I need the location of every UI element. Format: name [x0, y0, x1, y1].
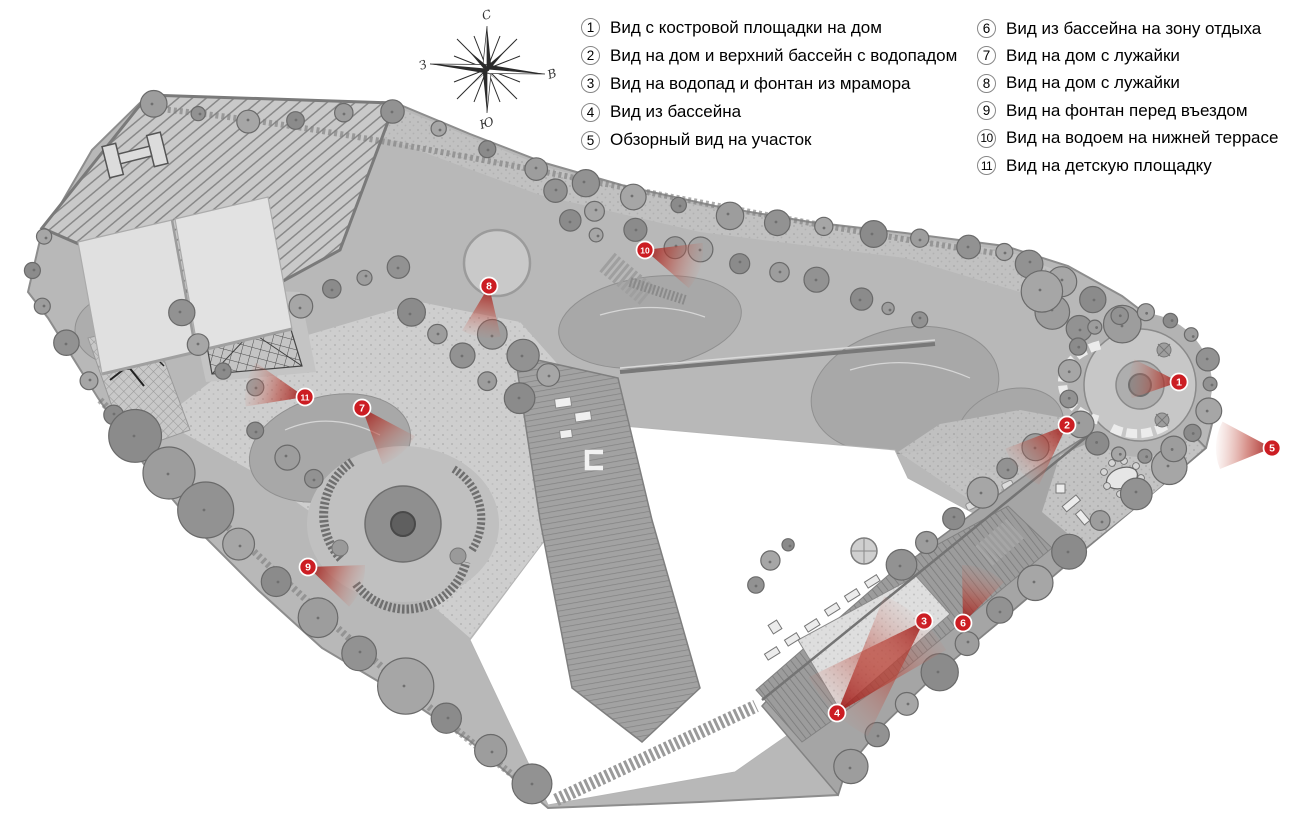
tree [191, 107, 205, 121]
tree-center-dot [815, 279, 818, 282]
tree [671, 197, 686, 212]
tree-center-dot [521, 355, 524, 358]
tree [223, 528, 255, 560]
view-marker-number: 1 [1176, 377, 1182, 389]
tree-center-dot [755, 585, 758, 588]
tree-center-dot [1068, 370, 1071, 373]
tree-center-dot [1095, 441, 1098, 444]
tree [860, 221, 887, 248]
view-marker-number: 4 [834, 708, 840, 720]
tree-center-dot [1101, 521, 1104, 524]
tree [834, 749, 868, 783]
tree-center-dot [65, 343, 68, 346]
tree [1203, 377, 1217, 391]
tree-center-dot [1167, 465, 1170, 468]
tree-center-dot [1077, 346, 1080, 349]
tree [1021, 271, 1062, 312]
tree [912, 312, 928, 328]
tree-center-dot [151, 103, 154, 106]
tree [955, 632, 979, 656]
tree [37, 229, 52, 244]
tree-center-dot [1145, 455, 1148, 458]
tree-center-dot [461, 355, 464, 358]
tree-center-dot [1192, 335, 1195, 338]
tree [475, 735, 507, 767]
tree-center-dot [167, 473, 170, 476]
tree [478, 372, 497, 391]
compass-label-west: З [417, 57, 428, 73]
tree-center-dot [488, 381, 491, 384]
tree-center-dot [43, 305, 46, 308]
view-marker-number: 11 [301, 393, 310, 403]
tree [261, 567, 291, 597]
tree-center-dot [331, 289, 334, 292]
tree-center-dot [33, 269, 36, 272]
tree-center-dot [133, 435, 136, 438]
tree [1112, 447, 1126, 461]
tree-center-dot [89, 379, 92, 382]
tree [730, 254, 750, 274]
view-marker-5: 5 [1215, 421, 1281, 471]
tree-center-dot [1039, 289, 1042, 292]
tree [815, 217, 833, 235]
tree [1121, 478, 1153, 510]
tree-center-dot [569, 221, 572, 224]
tree-center-dot [1079, 329, 1082, 332]
tree-center-dot [555, 189, 558, 192]
tree-center-dot [823, 227, 826, 230]
tree-center-dot [239, 545, 242, 548]
tree [967, 477, 998, 508]
tree-center-dot [247, 119, 250, 122]
tree-center-dot [980, 492, 983, 495]
tree [882, 302, 894, 314]
tree [916, 532, 938, 554]
tree-center-dot [937, 671, 940, 674]
tree-center-dot [597, 235, 600, 238]
tree [431, 121, 446, 136]
tree-center-dot [1171, 448, 1174, 451]
tree-center-dot [113, 413, 116, 416]
tree-center-dot [437, 333, 440, 336]
tree [782, 539, 794, 551]
tree-center-dot [295, 119, 298, 122]
view-marker-number: 10 [640, 246, 650, 256]
tree-center-dot [775, 221, 778, 224]
tree [1163, 313, 1177, 327]
tree-center-dot [535, 167, 538, 170]
view-marker-number: 5 [1269, 443, 1275, 455]
tree-center-dot [919, 239, 922, 242]
tree-center-dot [1145, 312, 1148, 315]
tree-center-dot [583, 181, 586, 184]
tree [1184, 328, 1198, 342]
tree-center-dot [391, 111, 394, 114]
tree [1088, 320, 1102, 334]
tree [178, 482, 234, 538]
tree-center-dot [1206, 358, 1209, 361]
tree-center-dot [317, 617, 320, 620]
tree [911, 229, 929, 247]
tree [289, 294, 313, 318]
tree [1196, 398, 1222, 424]
tree-center-dot [285, 455, 288, 458]
view-marker-number: 6 [960, 618, 966, 630]
tree-center-dot [1033, 581, 1036, 584]
tree-center-dot [631, 195, 634, 198]
tree-center-dot [518, 397, 521, 400]
tree [378, 658, 434, 714]
tree-center-dot [203, 509, 206, 512]
tree-center-dot [1077, 422, 1080, 425]
tree [761, 551, 780, 570]
tree [237, 110, 260, 133]
tree [275, 445, 300, 470]
tree [342, 636, 377, 671]
tree [572, 170, 599, 197]
tree-center-dot [403, 685, 406, 688]
tree [886, 550, 917, 581]
tree [215, 363, 231, 379]
site-plan: С Ю З В 1234567891011 [0, 0, 1300, 827]
garden-plan-sheet: С Ю З В 1234567891011 1Вид с костровой п… [0, 0, 1300, 827]
tree [589, 228, 603, 242]
round-patio [851, 538, 877, 564]
tree-center-dot [859, 299, 862, 302]
tree [140, 91, 167, 118]
tree-center-dot [967, 641, 970, 644]
tree-center-dot [953, 516, 956, 519]
tree [431, 703, 461, 733]
view-marker-number: 9 [305, 562, 311, 574]
tree-center-dot [1119, 453, 1122, 456]
tree-center-dot [1061, 279, 1064, 282]
tree-center-dot [1121, 325, 1124, 328]
tree-center-dot [223, 369, 226, 372]
tree-center-dot [999, 611, 1002, 614]
tree-center-dot [926, 540, 929, 543]
tree [247, 422, 264, 439]
tree-center-dot [779, 271, 782, 274]
tree-center-dot [1192, 432, 1195, 435]
view-marker-number: 2 [1064, 420, 1070, 432]
tree-center-dot [769, 561, 772, 564]
tree-center-dot [491, 751, 494, 754]
tree-center-dot [313, 479, 316, 482]
tree-center-dot [967, 246, 970, 249]
view-marker-number: 8 [486, 281, 492, 293]
tree-center-dot [409, 313, 412, 316]
tree [24, 263, 40, 279]
tree-center-dot [1029, 261, 1032, 264]
tree-center-dot [595, 209, 598, 212]
tree-center-dot [1135, 491, 1138, 494]
tree-center-dot [849, 767, 852, 770]
view-marker-number: 7 [359, 403, 365, 415]
tree [716, 202, 743, 229]
tree [1161, 436, 1187, 462]
tree-center-dot [727, 213, 730, 216]
tree-center-dot [1171, 319, 1174, 322]
tree-center-dot [635, 229, 638, 232]
tree-center-dot [343, 113, 346, 116]
tree [1138, 449, 1152, 463]
compass-label-north: С [480, 7, 493, 23]
tree-center-dot [871, 233, 874, 236]
tree-center-dot [487, 149, 490, 152]
tree-center-dot [299, 307, 302, 310]
compass-rose: С Ю З В [417, 7, 558, 132]
tree-center-dot [877, 735, 880, 738]
tree [987, 597, 1013, 623]
tree [621, 184, 647, 210]
tree-center-dot [739, 261, 742, 264]
tree-center-dot [531, 783, 534, 786]
tree [169, 300, 195, 326]
tree-center-dot [397, 267, 400, 270]
tree [585, 201, 605, 221]
tree [1090, 511, 1110, 531]
tree [357, 270, 372, 285]
tree [398, 298, 426, 326]
tree-center-dot [359, 651, 362, 654]
tree [1018, 565, 1053, 600]
tree-center-dot [1206, 410, 1209, 413]
tree-center-dot [447, 717, 450, 720]
tree-center-dot [1211, 384, 1214, 387]
compass-label-south: Ю [477, 114, 496, 132]
tree-center-dot [919, 317, 922, 320]
tree-center-dot [365, 275, 368, 278]
tree-center-dot [889, 309, 892, 312]
tree-center-dot [45, 237, 48, 240]
tree-center-dot [907, 703, 910, 706]
tree-center-dot [1067, 551, 1070, 554]
tree-center-dot [197, 343, 200, 346]
tree-center-dot [1068, 397, 1071, 400]
compass-label-east: В [545, 66, 559, 82]
tree-center-dot [179, 311, 182, 314]
tree-center-dot [1007, 469, 1010, 472]
tree-center-dot [255, 431, 258, 434]
tree-center-dot [1119, 314, 1122, 317]
tree-center-dot [899, 565, 902, 568]
tree-center-dot [199, 113, 202, 116]
tree [851, 288, 873, 310]
tree [560, 210, 581, 231]
tree-center-dot [277, 581, 280, 584]
tree-center-dot [789, 545, 792, 548]
tree-center-dot [1004, 252, 1007, 255]
tree-center-dot [439, 129, 442, 132]
tree-center-dot [679, 205, 682, 208]
tree-center-dot [1095, 326, 1098, 329]
tree-center-dot [1093, 299, 1096, 302]
tree [34, 298, 50, 314]
tree [943, 508, 965, 530]
tree [765, 210, 791, 236]
tree-center-dot [548, 375, 551, 378]
